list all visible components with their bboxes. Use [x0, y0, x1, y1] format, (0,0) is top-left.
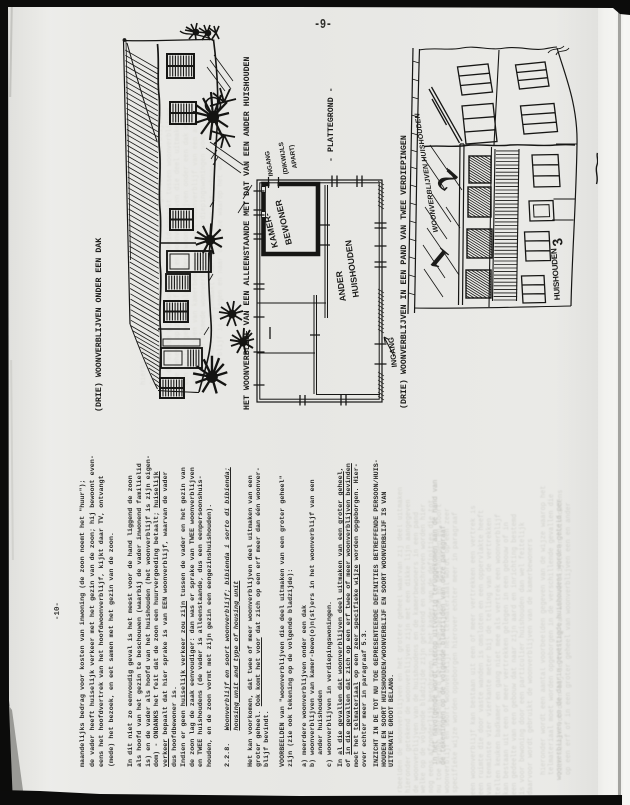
svg-text:APART): APART) — [288, 144, 299, 168]
svg-text:2: 2 — [430, 163, 463, 198]
svg-text:INGANG: INGANG — [264, 150, 275, 176]
svg-text:ANDER: ANDER — [334, 270, 348, 302]
svg-text:INGANG: INGANG — [386, 337, 399, 368]
svg-text:WOONVERBLIJVEN HUISHOUDEN: WOONVERBLIJVEN HUISHOUDEN — [414, 112, 440, 233]
